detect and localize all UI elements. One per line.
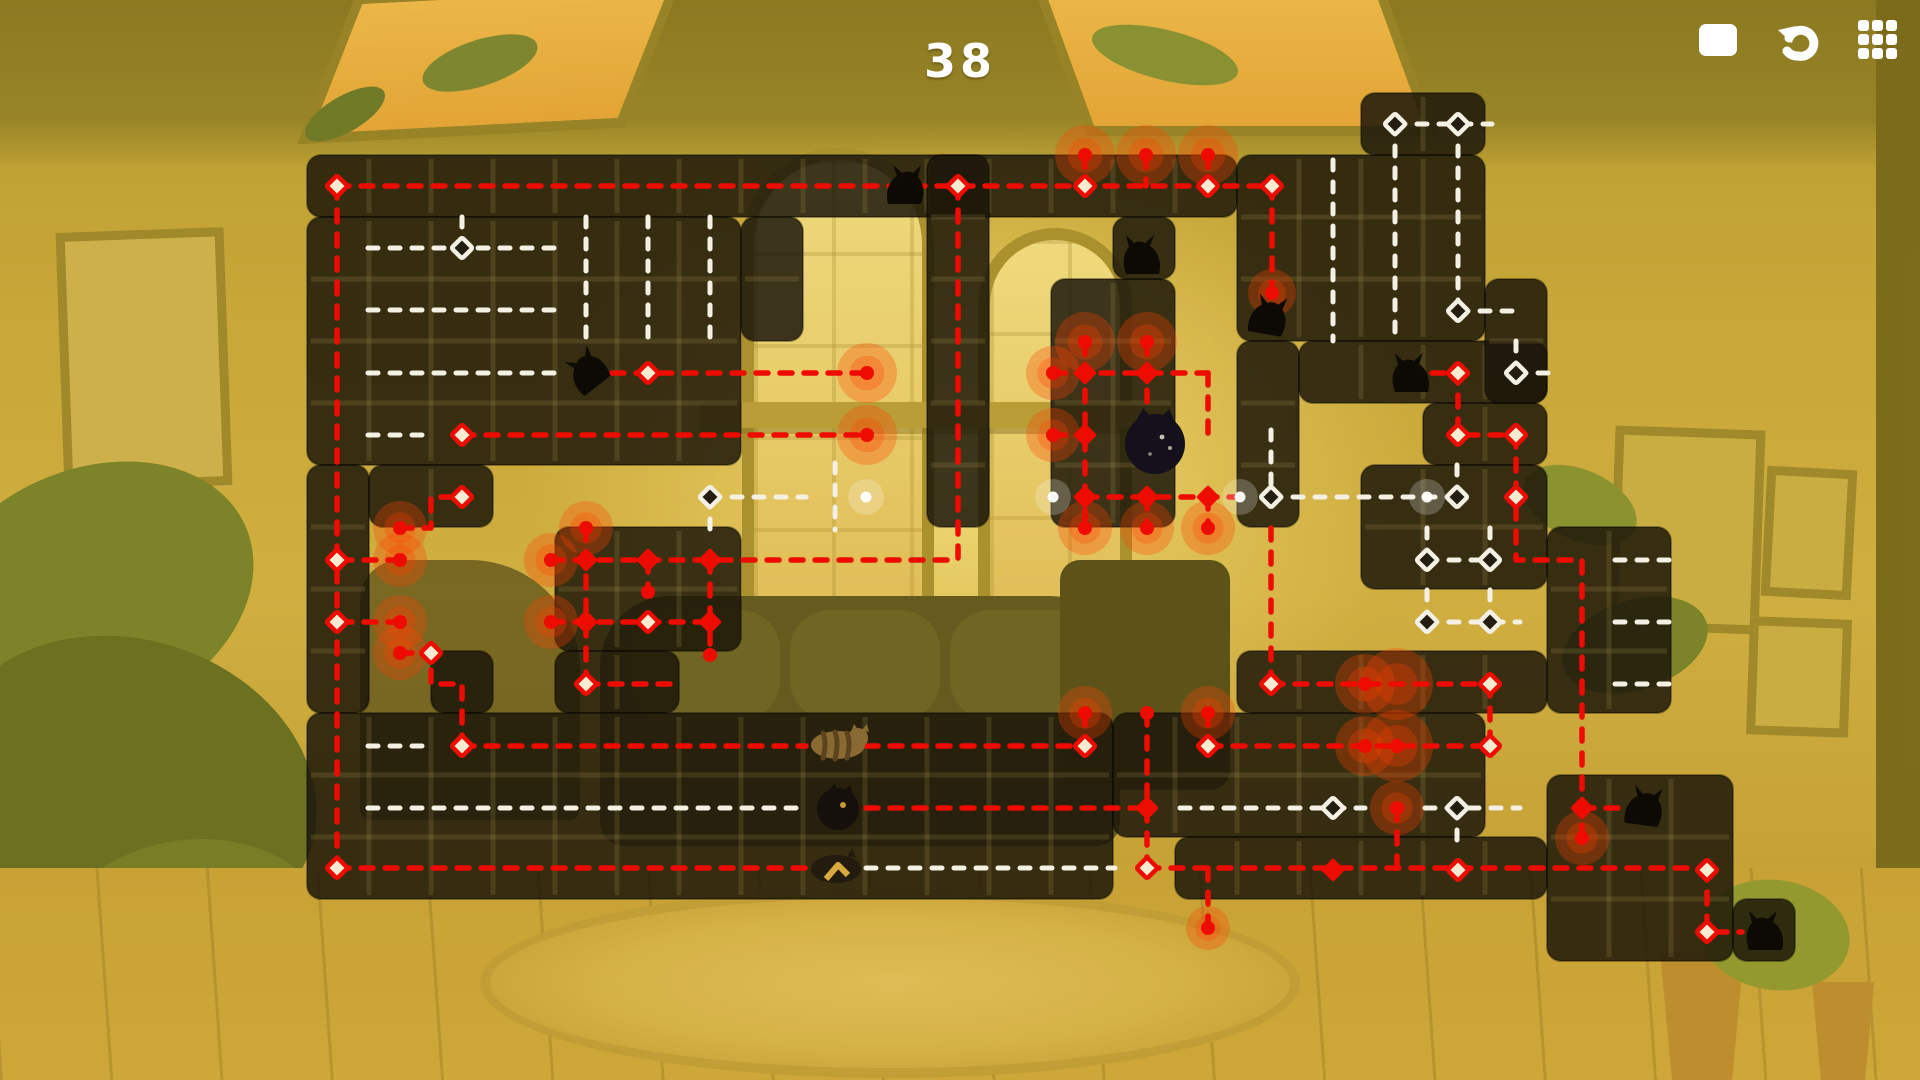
red-endpoint-dot[interactable] <box>1078 521 1092 535</box>
red-endpoint-dot[interactable] <box>1078 335 1092 349</box>
undo-arrow-icon <box>1774 16 1822 64</box>
red-endpoint-dot[interactable] <box>393 646 407 660</box>
red-endpoint-dot[interactable] <box>544 553 558 567</box>
red-endpoint-dot[interactable] <box>1201 706 1215 720</box>
red-endpoint-dot[interactable] <box>860 428 874 442</box>
game-screen: 38 <box>0 0 1920 1080</box>
red-endpoint-dot[interactable] <box>641 585 655 599</box>
red-endpoint-dot[interactable] <box>1201 148 1215 162</box>
red-endpoint-dot[interactable] <box>1390 739 1404 753</box>
move-counter: 38 <box>0 34 1920 88</box>
white-glow-dot[interactable] <box>1422 492 1433 503</box>
white-pin-node[interactable] <box>1416 611 1437 632</box>
red-endpoint-dot[interactable] <box>1358 739 1372 753</box>
red-pin-node[interactable] <box>1136 857 1157 878</box>
square-icon <box>1698 22 1738 58</box>
red-endpoint-dot[interactable] <box>1078 706 1092 720</box>
red-endpoint-dot[interactable] <box>393 615 407 629</box>
red-endpoint-dot[interactable] <box>1390 801 1404 815</box>
white-glow-dot[interactable] <box>1048 492 1059 503</box>
red-endpoint-dot[interactable] <box>703 648 717 662</box>
red-endpoint-dot[interactable] <box>393 521 407 535</box>
red-endpoint-dot[interactable] <box>393 553 407 567</box>
white-glow-dot[interactable] <box>1235 492 1246 503</box>
red-endpoint-dot[interactable] <box>860 366 874 380</box>
grid-icon <box>1856 18 1900 62</box>
puzzle-board[interactable] <box>0 0 1920 1080</box>
red-endpoint-dot[interactable] <box>544 615 558 629</box>
red-endpoint-dot[interactable] <box>1046 428 1060 442</box>
red-endpoint-dot[interactable] <box>1140 706 1154 720</box>
white-glow-dot[interactable] <box>861 492 872 503</box>
red-endpoint-dot[interactable] <box>1046 366 1060 380</box>
white-pin-node[interactable] <box>1479 611 1500 632</box>
red-endpoint-dot[interactable] <box>1575 831 1589 845</box>
white-pin-node[interactable] <box>699 486 720 507</box>
red-endpoint-dot[interactable] <box>1201 521 1215 535</box>
red-endpoint-dot[interactable] <box>1078 148 1092 162</box>
red-endpoint-dot[interactable] <box>1140 521 1154 535</box>
red-endpoint-dot[interactable] <box>1201 921 1215 935</box>
red-endpoint-dot[interactable] <box>1140 335 1154 349</box>
red-endpoint-dot[interactable] <box>1358 677 1372 691</box>
red-endpoint-dot[interactable] <box>1139 148 1153 162</box>
stop-button[interactable] <box>1692 14 1744 66</box>
red-endpoint-dot[interactable] <box>579 521 593 535</box>
red-endpoint-dot[interactable] <box>1265 286 1279 300</box>
undo-button[interactable] <box>1772 14 1824 66</box>
level-select-button[interactable] <box>1852 14 1904 66</box>
